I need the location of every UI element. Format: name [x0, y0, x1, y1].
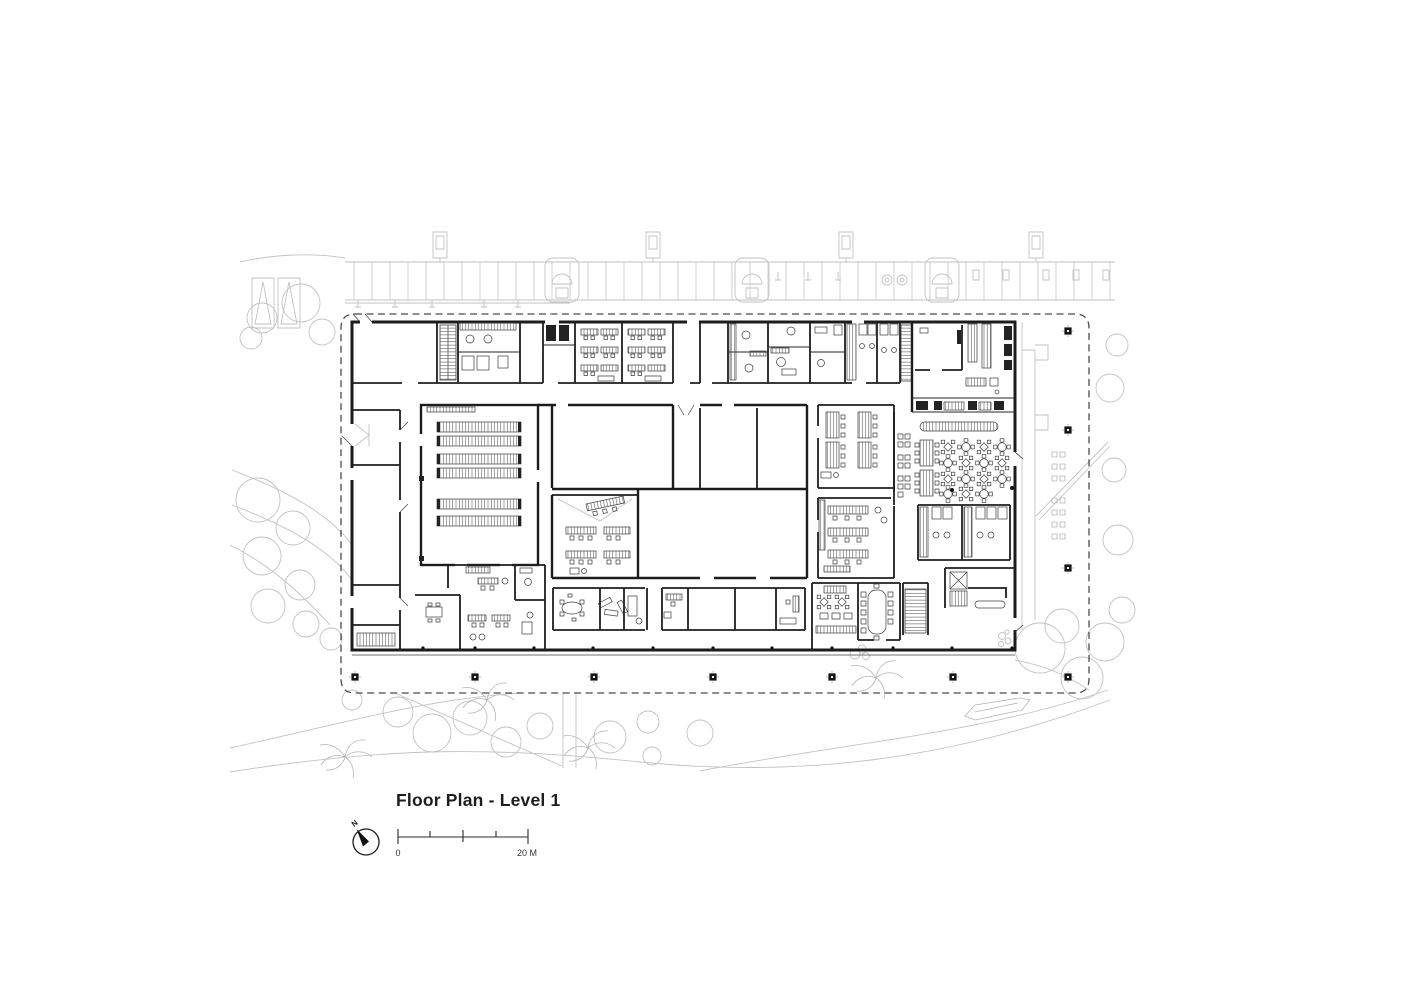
- north-label: N: [350, 818, 360, 828]
- auditorium: [418, 405, 541, 568]
- central-halls: [538, 402, 807, 581]
- scale-bar: 0 20 M: [395, 829, 537, 858]
- lab-tables: [819, 412, 887, 572]
- title-block: Floor Plan - Level 1 N 0 20 M: [350, 790, 561, 858]
- scale-zero-label: 0: [395, 848, 400, 858]
- skylight-markers: [433, 232, 1043, 262]
- meeting-rooms-south: [553, 588, 805, 630]
- classroom-mid: [558, 496, 632, 574]
- stairs-northwest: [440, 325, 456, 380]
- lounge-south: [812, 583, 858, 650]
- sanitary-block: [918, 505, 1010, 560]
- drawing-title: Floor Plan - Level 1: [396, 790, 561, 810]
- washroom-north: [460, 323, 516, 370]
- dining-tables: [940, 439, 1011, 503]
- west-room-strip: [352, 410, 408, 650]
- north-arrow-icon: N: [350, 818, 379, 855]
- conference-room-south: [858, 583, 900, 640]
- classrooms-north: [581, 329, 665, 381]
- east-terrace-paths: [1022, 322, 1110, 630]
- interior-partitions-top: [352, 322, 900, 383]
- building: [342, 314, 1023, 655]
- servery-counter: [912, 398, 1015, 412]
- lift-lobby: [546, 325, 569, 341]
- lab-rooms-east: [815, 405, 897, 578]
- floor-plan-drawing: Floor Plan - Level 1 N 0 20 M: [0, 0, 1415, 1000]
- garden-bench: [965, 698, 1030, 720]
- dining-booth-seats: [898, 434, 910, 497]
- trees-right: [1015, 334, 1135, 699]
- auditorium-seating: [437, 422, 521, 526]
- floor-plan-sheet: Floor Plan - Level 1 N 0 20 M: [0, 0, 1415, 1000]
- stairs-south: [903, 583, 928, 635]
- scale-max-label: 20 M: [517, 848, 537, 858]
- stairs-north: [901, 325, 912, 381]
- offices-southwest: [415, 565, 545, 650]
- kitchen: [912, 322, 1015, 412]
- trees-bottom: [230, 645, 1110, 778]
- trees-left: [230, 255, 352, 650]
- dining-hall: [894, 412, 1014, 505]
- parking-strip: [345, 232, 1115, 307]
- lobby-southeast: [945, 568, 1015, 647]
